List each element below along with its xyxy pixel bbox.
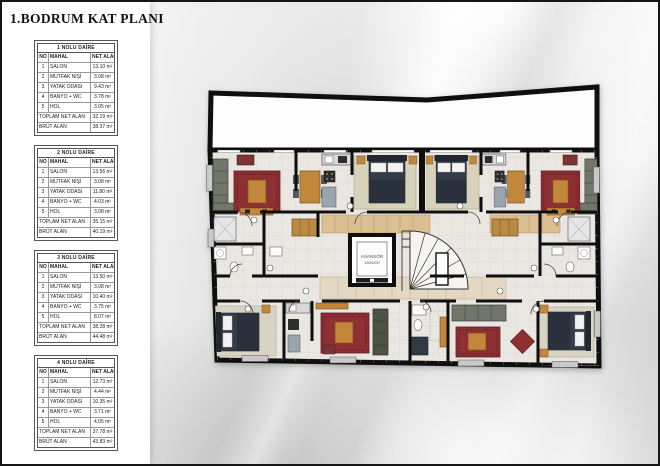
table-cell: 13.56 m²: [91, 168, 114, 177]
table-cell: 3: [38, 293, 49, 302]
table-cell: 3.05 m²: [91, 103, 114, 112]
table-cell: SALON: [49, 63, 91, 72]
table-row: 3YATAK ODASI9.43 m²: [38, 83, 114, 93]
table-cell: 2: [38, 178, 49, 187]
table: 3 NOLU DAİRENOMAHALNET ALAN1SALON13.50 m…: [37, 253, 115, 343]
table-cell: HOL: [49, 418, 91, 427]
table-header-cell: MAHAL: [49, 263, 91, 272]
floor-plan: ASANSÖR 150x200: [204, 79, 606, 384]
area-table-3: 3 NOLU DAİRENOMAHALNET ALAN1SALON13.50 m…: [34, 250, 118, 346]
table-cell: YATAK ODASI: [49, 83, 91, 92]
total-value: 37.78 m²: [91, 428, 114, 437]
table-row: 3YATAK ODASI10.40 m²: [38, 293, 114, 303]
table-row: 5HOL3.05 m²: [38, 103, 114, 113]
table-row: 4BANYO + WC3.75 m²: [38, 303, 114, 313]
total-label: TOPLAM NET ALAN: [38, 218, 91, 227]
table-cell: 2: [38, 283, 49, 292]
table-cell: 1: [38, 273, 49, 282]
table-cell: 13.10 m²: [91, 63, 114, 72]
table-row: 5HOL3.08 m²: [38, 208, 114, 218]
table-cell: 1: [38, 63, 49, 72]
table-title: 4 NOLU DAİRE: [38, 359, 114, 368]
total-label: TOPLAM NET ALAN: [38, 113, 91, 122]
table-cell: 4.44 m²: [91, 388, 114, 397]
table-cell: BANYO + WC: [49, 93, 91, 102]
table-header-cell: NET ALAN: [91, 263, 114, 272]
table-header-row: NOMAHALNET ALAN: [38, 368, 114, 378]
table-cell: 4: [38, 408, 49, 417]
gross-label: BRÜT ALAN: [38, 438, 91, 447]
table-header-cell: MAHAL: [49, 368, 91, 377]
table-row: 1SALON13.50 m²: [38, 273, 114, 283]
left-panel: 1.BODRUM KAT PLANI 1 NOLU DAİRENOMAHALNE…: [2, 2, 150, 464]
table-cell: 4.05 m²: [91, 418, 114, 427]
table-total-row: TOPLAM NET ALAN 32.19 m²: [38, 113, 114, 123]
table-cell: 1: [38, 378, 49, 387]
table-row: 3YATAK ODASI11.80 m²: [38, 188, 114, 198]
gross-value: 44.48 m²: [91, 333, 114, 342]
table-cell: 11.80 m²: [91, 188, 114, 197]
table-cell: 3.08 m²: [91, 283, 114, 292]
table-cell: MUTFAK NİŞİ: [49, 178, 91, 187]
table-cell: SALON: [49, 168, 91, 177]
gross-value: 43.83 m²: [91, 438, 114, 447]
table-cell: 2: [38, 388, 49, 397]
table-gross-row: BRÜT ALAN 38.37 m²: [38, 123, 114, 132]
table: 1 NOLU DAİRENOMAHALNET ALAN1SALON13.10 m…: [37, 43, 115, 133]
table-header-cell: MAHAL: [49, 158, 91, 167]
table-cell: HOL: [49, 208, 91, 217]
table-row: 4BANYO + WC3.78 m²: [38, 93, 114, 103]
table-cell: 3: [38, 398, 49, 407]
table-cell: 3.08 m²: [91, 178, 114, 187]
elevator-size-label: 150x200: [364, 260, 380, 265]
total-value: 32.19 m²: [91, 113, 114, 122]
table-cell: 13.50 m²: [91, 273, 114, 282]
table-title: 1 NOLU DAİRE: [38, 44, 114, 53]
table-cell: HOL: [49, 103, 91, 112]
table-cell: SALON: [49, 273, 91, 282]
table-cell: 9.43 m²: [91, 83, 114, 92]
table-row: 2MUTFAK NİŞİ3.08 m²: [38, 178, 114, 188]
table-cell: 5: [38, 208, 49, 217]
table-cell: MUTFAK NİŞİ: [49, 73, 91, 82]
table-header-row: NOMAHALNET ALAN: [38, 158, 114, 168]
elevator-label: ASANSÖR: [361, 253, 384, 259]
table-cell: 8.07 m²: [91, 313, 114, 322]
table-cell: 4: [38, 303, 49, 312]
area-table-2: 2 NOLU DAİRENOMAHALNET ALAN1SALON13.56 m…: [34, 145, 118, 241]
area-table-1: 1 NOLU DAİRENOMAHALNET ALAN1SALON13.10 m…: [34, 40, 118, 136]
table-cell: 5: [38, 103, 49, 112]
elevator: ASANSÖR 150x200: [350, 235, 394, 285]
table-cell: 3.75 m²: [91, 303, 114, 312]
table-gross-row: BRÜT ALAN 40.19 m²: [38, 228, 114, 237]
bedroom-bottom-right: [538, 305, 594, 357]
table-cell: 3.78 m²: [91, 93, 114, 102]
table-cell: BANYO + WC: [49, 408, 91, 417]
table-row: 2MUTFAK NİŞİ4.44 m²: [38, 388, 114, 398]
table-cell: SALON: [49, 378, 91, 387]
table-row: 4BANYO + WC3.71 m²: [38, 408, 114, 418]
table-row: 4BANYO + WC4.03 m²: [38, 198, 114, 208]
table-header-cell: NET ALAN: [91, 53, 114, 62]
sheet: 1.BODRUM KAT PLANI 1 NOLU DAİRENOMAHALNE…: [0, 0, 660, 466]
table-header-cell: NO: [38, 263, 49, 272]
table-cell: BANYO + WC: [49, 303, 91, 312]
table-cell: 5: [38, 313, 49, 322]
table-cell: HOL: [49, 313, 91, 322]
gross-label: BRÜT ALAN: [38, 228, 91, 237]
table-cell: 3: [38, 188, 49, 197]
table-cell: YATAK ODASI: [49, 293, 91, 302]
table-header-cell: NO: [38, 53, 49, 62]
table-header-cell: MAHAL: [49, 53, 91, 62]
floor-plan-svg: ASANSÖR 150x200: [204, 79, 606, 379]
table-total-row: TOPLAM NET ALAN 35.15 m²: [38, 218, 114, 228]
table-cell: 2: [38, 73, 49, 82]
total-label: TOPLAM NET ALAN: [38, 428, 91, 437]
table-cell: 4.03 m²: [91, 198, 114, 207]
table-title: 3 NOLU DAİRE: [38, 254, 114, 263]
gross-label: BRÜT ALAN: [38, 123, 91, 132]
page-title: 1.BODRUM KAT PLANI: [10, 11, 144, 27]
table-header-cell: NO: [38, 368, 49, 377]
table-gross-row: BRÜT ALAN 43.83 m²: [38, 438, 114, 447]
table-title: 2 NOLU DAİRE: [38, 149, 114, 158]
table-row: 1SALON13.10 m²: [38, 63, 114, 73]
table-cell: 4: [38, 93, 49, 102]
table-cell: 5: [38, 418, 49, 427]
table-cell: 3.08 m²: [91, 208, 114, 217]
table-cell: 10.40 m²: [91, 293, 114, 302]
table-cell: 3: [38, 83, 49, 92]
table-header-cell: NO: [38, 158, 49, 167]
terrace-band: [210, 87, 597, 150]
table-header-cell: NET ALAN: [91, 158, 114, 167]
table-cell: 1: [38, 168, 49, 177]
table-row: 2MUTFAK NİŞİ3.08 m²: [38, 283, 114, 293]
table: 2 NOLU DAİRENOMAHALNET ALAN1SALON13.56 m…: [37, 148, 115, 238]
table-cell: YATAK ODASI: [49, 398, 91, 407]
table-header-row: NOMAHALNET ALAN: [38, 53, 114, 63]
gross-value: 38.37 m²: [91, 123, 114, 132]
table-cell: 3.08 m²: [91, 73, 114, 82]
table-total-row: TOPLAM NET ALAN 38.28 m²: [38, 323, 114, 333]
bedroom-bottom-left: [214, 305, 276, 356]
table-row: 1SALON12.73 m²: [38, 378, 114, 388]
table: 4 NOLU DAİRENOMAHALNET ALAN1SALON12.73 m…: [37, 358, 115, 448]
table-header-cell: NET ALAN: [91, 368, 114, 377]
table-row: 3YATAK ODASI10.35 m²: [38, 398, 114, 408]
gross-value: 40.19 m²: [91, 228, 114, 237]
gross-label: BRÜT ALAN: [38, 333, 91, 342]
total-label: TOPLAM NET ALAN: [38, 323, 91, 332]
table-cell: 12.73 m²: [91, 378, 114, 387]
table-row: 5HOL8.07 m²: [38, 313, 114, 323]
table-row: 5HOL4.05 m²: [38, 418, 114, 428]
table-gross-row: BRÜT ALAN 44.48 m²: [38, 333, 114, 342]
table-row: 1SALON13.56 m²: [38, 168, 114, 178]
table-header-row: NOMAHALNET ALAN: [38, 263, 114, 273]
area-tables: 1 NOLU DAİRENOMAHALNET ALAN1SALON13.10 m…: [2, 40, 150, 451]
total-value: 35.15 m²: [91, 218, 114, 227]
table-cell: 3.71 m²: [91, 408, 114, 417]
table-cell: 10.35 m²: [91, 398, 114, 407]
table-cell: 4: [38, 198, 49, 207]
total-value: 38.28 m²: [91, 323, 114, 332]
table-cell: MUTFAK NİŞİ: [49, 388, 91, 397]
area-table-4: 4 NOLU DAİRENOMAHALNET ALAN1SALON12.73 m…: [34, 355, 118, 451]
table-cell: MUTFAK NİŞİ: [49, 283, 91, 292]
table-cell: BANYO + WC: [49, 198, 91, 207]
table-cell: YATAK ODASI: [49, 188, 91, 197]
table-row: 2MUTFAK NİŞİ3.08 m²: [38, 73, 114, 83]
table-total-row: TOPLAM NET ALAN 37.78 m²: [38, 428, 114, 438]
